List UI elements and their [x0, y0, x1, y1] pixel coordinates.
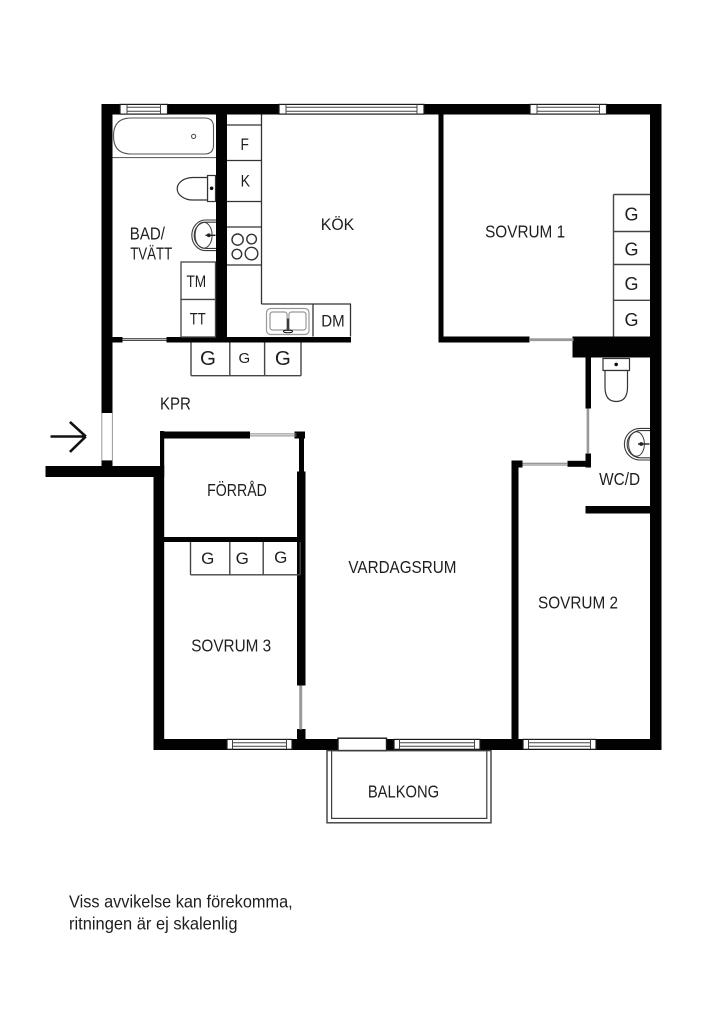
- svg-text:SOVRUM 1: SOVRUM 1: [485, 221, 565, 241]
- svg-text:G: G: [201, 549, 214, 568]
- svg-text:ritningen är ej skalenlig: ritningen är ej skalenlig: [69, 914, 238, 934]
- svg-text:FÖRRÅD: FÖRRÅD: [207, 480, 267, 500]
- svg-text:Viss avvikelse kan förekomma,: Viss avvikelse kan förekomma,: [69, 892, 293, 912]
- svg-text:G: G: [274, 548, 287, 567]
- svg-text:BALKONG: BALKONG: [368, 782, 439, 802]
- svg-text:G: G: [624, 310, 638, 330]
- svg-text:KPR: KPR: [160, 393, 191, 413]
- svg-text:G: G: [200, 347, 216, 370]
- svg-text:BAD/: BAD/: [130, 224, 165, 244]
- svg-text:DM: DM: [321, 311, 344, 330]
- svg-text:G: G: [624, 205, 638, 225]
- svg-text:F: F: [241, 135, 249, 154]
- svg-text:KÖK: KÖK: [321, 216, 355, 234]
- svg-text:SOVRUM 2: SOVRUM 2: [538, 592, 618, 612]
- svg-text:G: G: [236, 549, 249, 568]
- svg-text:G: G: [275, 347, 291, 370]
- svg-text:TM: TM: [186, 272, 206, 291]
- svg-text:TVÄTT: TVÄTT: [130, 243, 172, 263]
- svg-text:TT: TT: [190, 309, 206, 328]
- svg-text:VARDAGSRUM: VARDAGSRUM: [348, 557, 456, 577]
- svg-text:G: G: [238, 350, 250, 367]
- svg-text:SOVRUM 3: SOVRUM 3: [191, 636, 271, 656]
- svg-text:G: G: [624, 240, 638, 260]
- svg-text:G: G: [624, 274, 638, 294]
- svg-text:K: K: [241, 172, 251, 191]
- svg-text:WC/D: WC/D: [599, 469, 640, 489]
